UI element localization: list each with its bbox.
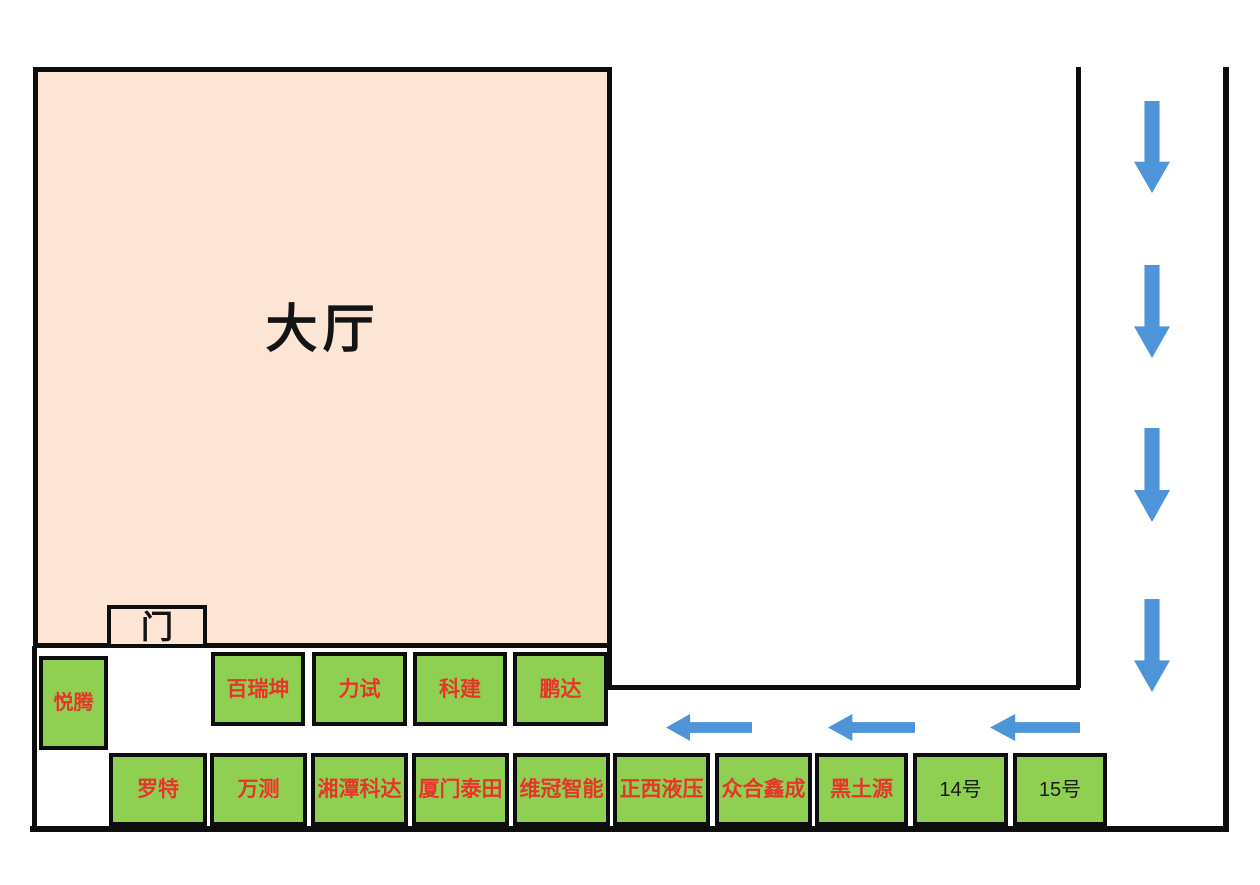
booth-box: 科建 — [413, 652, 507, 726]
left-arrow-icon — [990, 714, 1080, 741]
booth-label: 万测 — [238, 779, 280, 800]
booth-box: 罗特 — [109, 753, 207, 826]
door: 门 — [107, 605, 207, 648]
door-label: 门 — [141, 611, 173, 643]
wall-inner-vertical — [1076, 67, 1081, 688]
wall-outer-bottom — [30, 826, 1229, 832]
booth-label: 鹏达 — [540, 679, 582, 700]
booth-box: 14号 — [913, 753, 1008, 826]
down-arrow-icon — [1134, 599, 1170, 692]
booth-label: 悦腾 — [54, 693, 94, 713]
booth-label: 维冠智能 — [520, 779, 604, 800]
left-arrow-icon — [666, 714, 752, 741]
down-arrow-icon — [1134, 101, 1170, 193]
booth-box: 湘潭科达 — [311, 753, 408, 826]
booth-label: 厦门泰田 — [419, 779, 503, 800]
booth-label: 14号 — [939, 780, 981, 800]
booth-box: 力试 — [312, 652, 407, 726]
booth-label: 科建 — [439, 679, 481, 700]
booth-label: 力试 — [339, 679, 381, 700]
down-arrow-icon — [1134, 265, 1170, 358]
wall-inner-horizontal — [610, 685, 1080, 690]
down-arrow-icon — [1134, 428, 1170, 522]
wall-outer-left-lower — [32, 646, 37, 832]
booth-box: 15号 — [1013, 753, 1107, 826]
booth-box: 万测 — [210, 753, 307, 826]
booth-box: 悦腾 — [39, 656, 108, 750]
left-arrow-icon — [828, 714, 915, 741]
booth-label: 百瑞坤 — [227, 679, 290, 700]
booth-label: 众合鑫成 — [722, 779, 806, 800]
booth-box: 黑土源 — [815, 753, 908, 826]
booth-box: 厦门泰田 — [412, 753, 509, 826]
booth-box: 众合鑫成 — [715, 753, 812, 826]
booth-label: 15号 — [1039, 780, 1081, 800]
booth-label: 湘潭科达 — [318, 779, 402, 800]
main-hall: 大厅 — [33, 67, 612, 648]
booth-box: 维冠智能 — [513, 753, 610, 826]
booth-box: 鹏达 — [513, 652, 608, 726]
wall-outer-right — [1223, 67, 1229, 832]
main-hall-label: 大厅 — [38, 304, 607, 356]
booth-box: 正西液压 — [613, 753, 710, 826]
floor-plan: 大厅 门 悦腾 百瑞坤 力试 科建 鹏达 罗特 万测 湘潭科达 厦门泰田 维冠智… — [0, 0, 1260, 885]
booth-label: 正西液压 — [620, 779, 704, 800]
booth-label: 黑土源 — [830, 779, 893, 800]
booth-label: 罗特 — [137, 779, 179, 800]
booth-box: 百瑞坤 — [211, 652, 305, 726]
